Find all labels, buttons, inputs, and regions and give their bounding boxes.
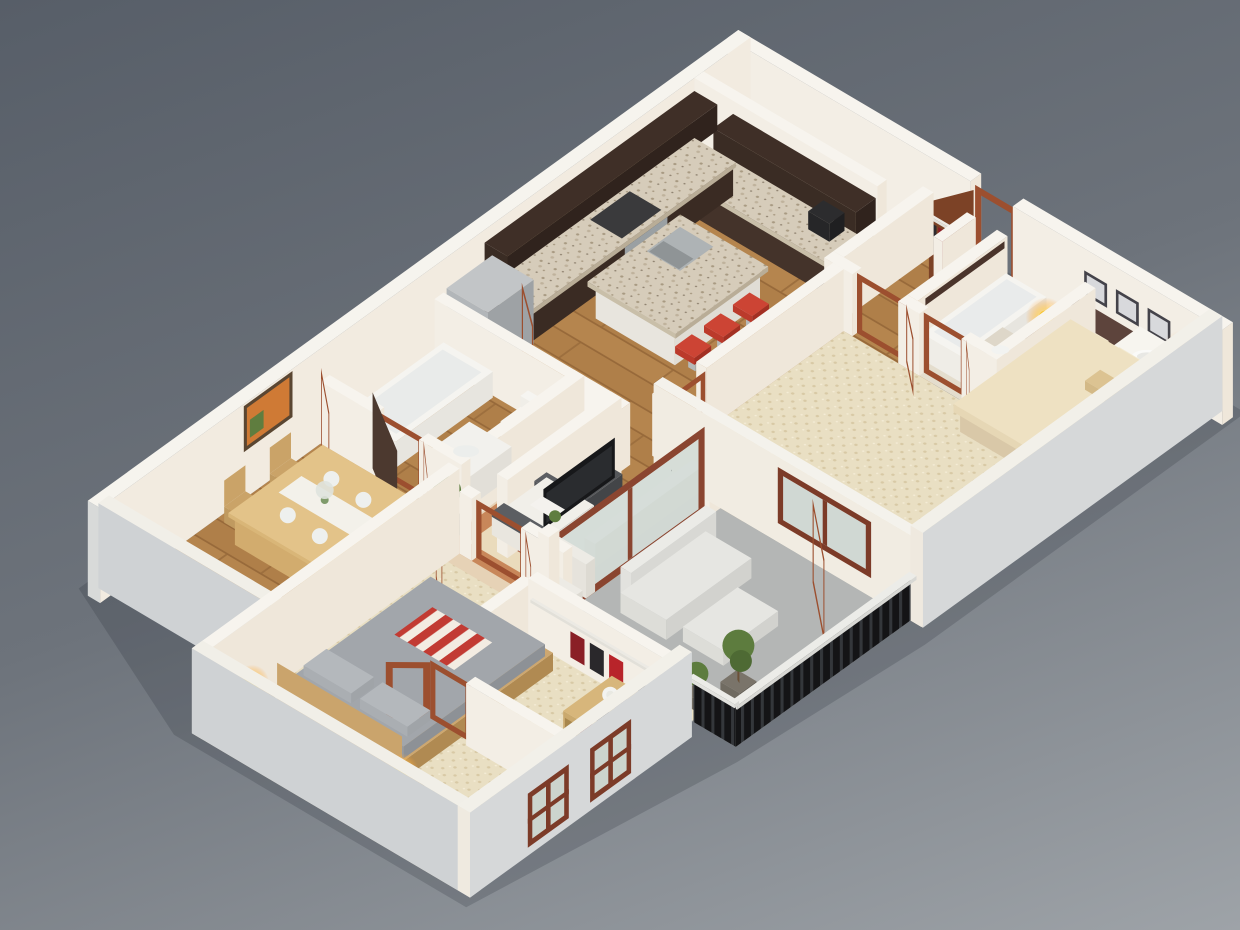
coffee-table-plant xyxy=(549,510,561,522)
floorplan-stage xyxy=(0,0,1240,930)
bath1-sink xyxy=(453,445,479,457)
bedroom2-window-wall xyxy=(458,805,470,897)
dinner-plate-3 xyxy=(280,507,296,523)
bath2-sink xyxy=(991,345,1009,354)
render-root xyxy=(79,30,1240,907)
master-window-mullion xyxy=(823,500,827,547)
balcony-slider-mullion xyxy=(628,487,633,560)
dinner-plate-2 xyxy=(355,492,371,508)
floorplan-3d-render xyxy=(0,0,1240,930)
balcony-tree-foliage-3 xyxy=(730,650,752,672)
dinner-plate-4 xyxy=(312,528,328,544)
back-wall-right xyxy=(1222,322,1233,425)
sofa-arm-right xyxy=(586,558,595,599)
table-flowers xyxy=(316,481,334,499)
bath2-front-wall-a xyxy=(898,301,919,376)
left-wall xyxy=(88,501,100,603)
bedroom2-back-wall-a xyxy=(459,492,471,561)
